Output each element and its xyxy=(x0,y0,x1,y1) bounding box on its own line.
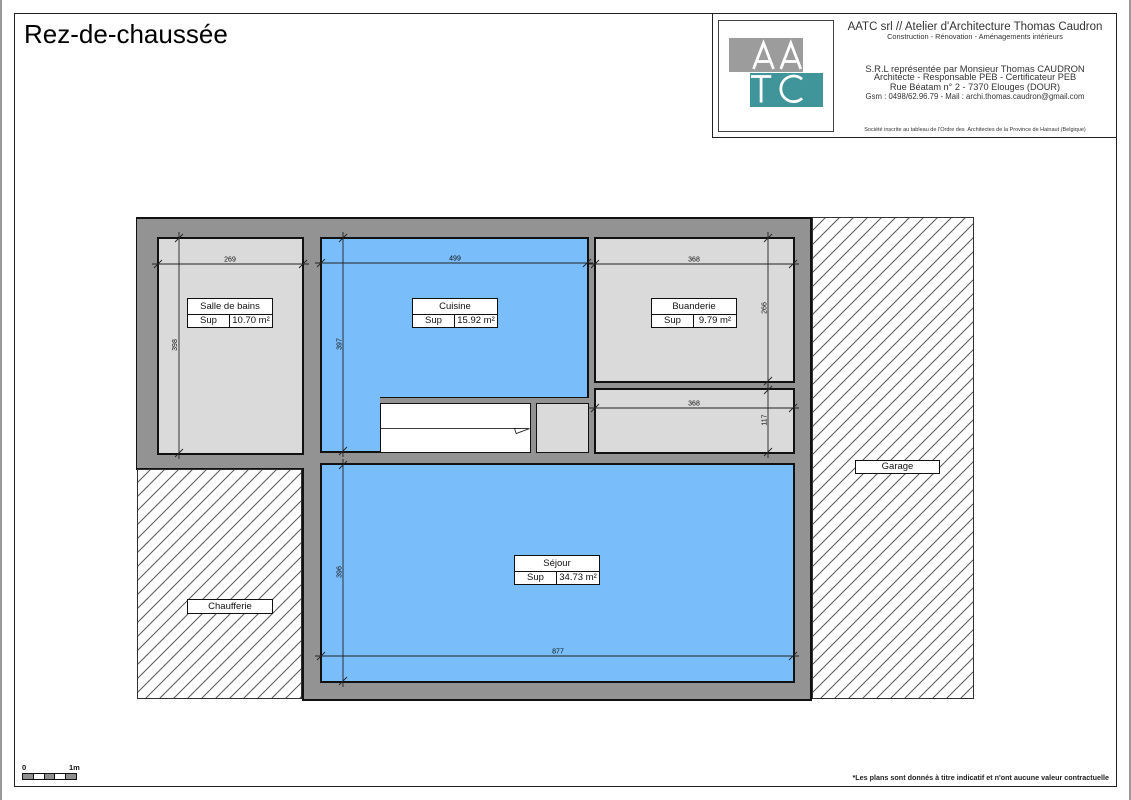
svg-text:269: 269 xyxy=(224,257,236,264)
svg-text:877: 877 xyxy=(552,649,564,656)
svg-text:397: 397 xyxy=(337,338,344,350)
svg-text:499: 499 xyxy=(449,256,461,263)
svg-text:396: 396 xyxy=(337,566,344,578)
svg-text:398: 398 xyxy=(172,339,179,351)
svg-text:368: 368 xyxy=(688,401,700,408)
svg-text:117: 117 xyxy=(762,414,769,425)
svg-text:368: 368 xyxy=(688,257,700,264)
svg-text:266: 266 xyxy=(762,302,769,314)
